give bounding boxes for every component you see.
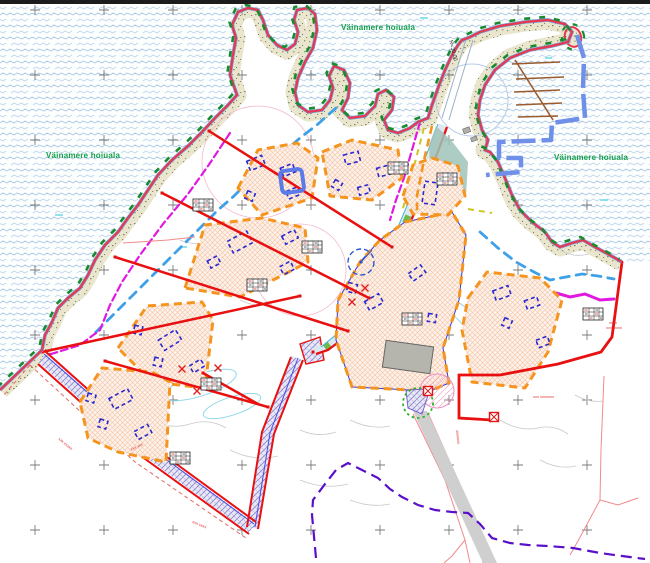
tiny-label-se-parcel: xxx xxxxxxx xyxy=(533,395,554,399)
detail-plan-map: Väinamere hoiuala Väinamere hoiuala Väin… xyxy=(0,0,650,563)
protected-area-label-left: Väinamere hoiuala xyxy=(46,152,120,160)
protected-area-label-top: Väinamere hoiuala xyxy=(341,24,415,32)
tiny-label-ne-2: xxxxxxxx xyxy=(606,326,622,330)
top-border-bar xyxy=(0,0,650,4)
tiny-label-south-road: xxxxxxx xyxy=(455,430,461,444)
protected-area-label-right: Väinamere hoiuala xyxy=(554,154,628,162)
survey-grid xyxy=(0,0,650,563)
map-canvas xyxy=(0,0,650,563)
